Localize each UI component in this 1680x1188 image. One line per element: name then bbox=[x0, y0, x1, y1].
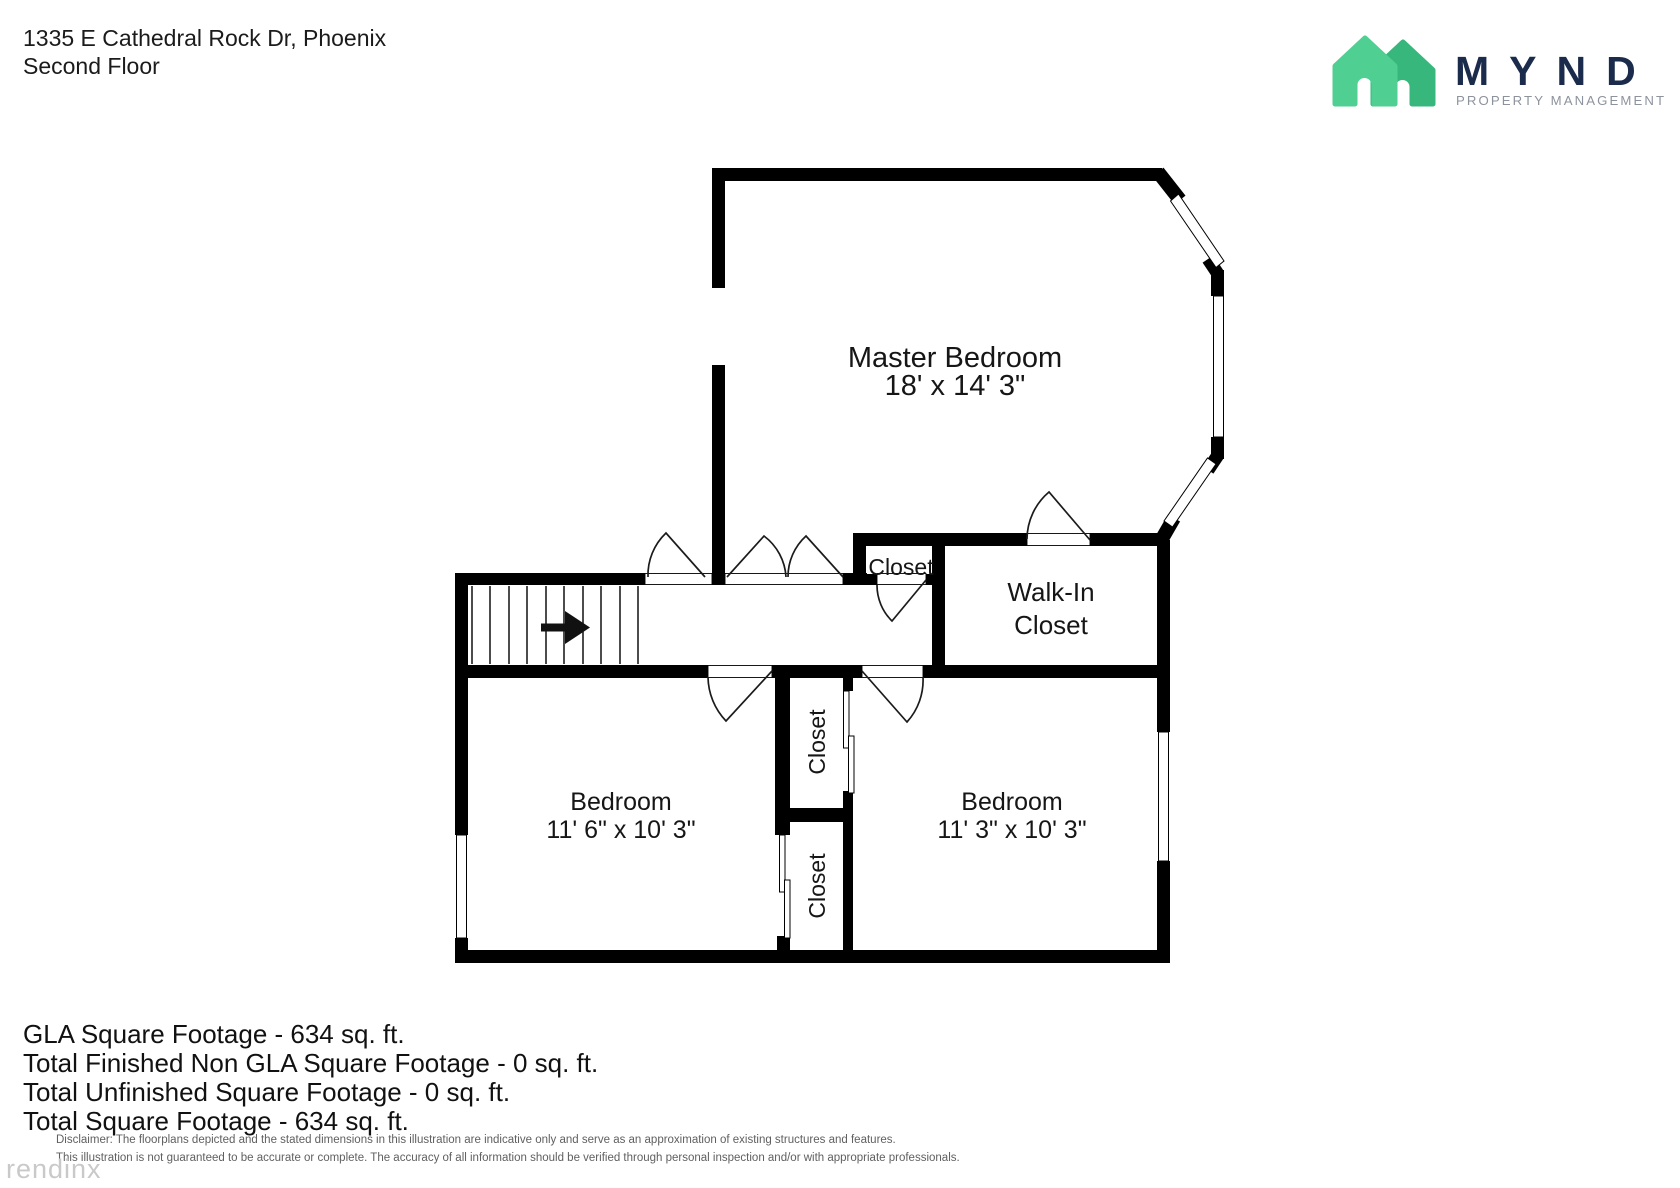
bedroom-right-dims: 11' 3" x 10' 3" bbox=[937, 816, 1086, 844]
mynd-house-light-icon bbox=[1335, 38, 1395, 104]
brand-tagline: PROPERTY MANAGEMENT bbox=[1456, 93, 1666, 108]
bay-window-lower bbox=[1164, 458, 1216, 527]
master-bedroom-dims: 18' x 14' 3" bbox=[885, 370, 1026, 402]
bedroom-left-door bbox=[708, 671, 772, 721]
room-labels: Master Bedroom 18' x 14' 3" Walk-In Clos… bbox=[546, 342, 1094, 919]
walk-in-closet-label-line1: Walk-In bbox=[1007, 577, 1094, 607]
disclaimer-line: Disclaimer: The floorplans depicted and … bbox=[56, 1131, 960, 1149]
mynd-logo: MYND PROPERTY MANAGEMENT bbox=[1335, 38, 1666, 108]
upper-closet-label: Closet bbox=[804, 709, 830, 775]
disclaimer-line: This illustration is not guaranteed to b… bbox=[56, 1149, 960, 1167]
summary-line: GLA Square Footage - 634 sq. ft. bbox=[23, 1020, 598, 1049]
bay-window-center bbox=[1214, 296, 1224, 437]
hall-closet-label: Closet bbox=[868, 554, 934, 580]
hall-closet-door bbox=[877, 580, 926, 621]
stair-landing-door bbox=[648, 533, 705, 577]
brand-wordmark: MYND bbox=[1455, 48, 1656, 94]
walk-in-closet-label-line2: Closet bbox=[1014, 610, 1088, 640]
bedroom-left-label: Bedroom bbox=[570, 788, 671, 816]
bay-window-upper bbox=[1171, 194, 1225, 268]
disclaimer-block: Disclaimer: The floorplans depicted and … bbox=[56, 1131, 960, 1167]
lower-closet-label: Closet bbox=[804, 853, 830, 919]
summary-block: GLA Square Footage - 634 sq. ft. Total F… bbox=[23, 1020, 598, 1136]
walk-in-closet-door bbox=[1027, 492, 1090, 540]
bedroom-right-label: Bedroom bbox=[961, 788, 1062, 816]
page: { "header": { "address": "1335 E Cathedr… bbox=[0, 0, 1680, 1188]
master-double-door-right bbox=[788, 536, 843, 577]
window-west bbox=[457, 835, 467, 938]
stairs bbox=[472, 586, 638, 664]
master-double-door-left bbox=[727, 536, 786, 577]
floor-plan: MYND PROPERTY MANAGEMENT bbox=[0, 0, 1680, 1188]
window-east bbox=[1159, 732, 1169, 861]
summary-line: Total Unfinished Square Footage - 0 sq. … bbox=[23, 1078, 598, 1107]
bedroom-right-door bbox=[862, 671, 923, 722]
bedroom-left-dims: 11' 6" x 10' 3" bbox=[546, 816, 695, 844]
watermark: rendinx bbox=[6, 1154, 102, 1185]
summary-line: Total Finished Non GLA Square Footage - … bbox=[23, 1049, 598, 1078]
